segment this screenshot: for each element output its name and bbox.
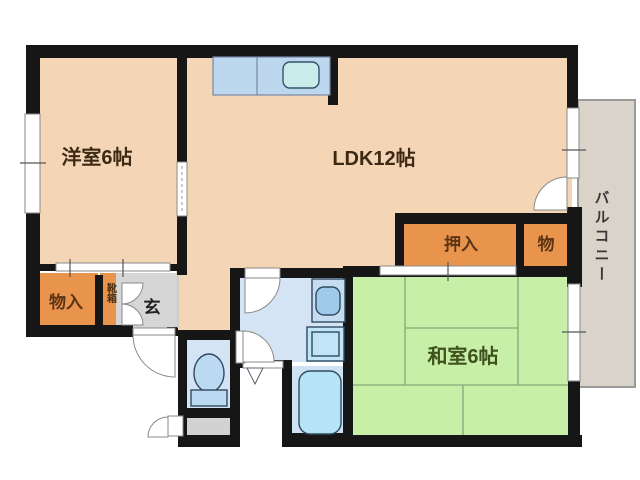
label-western-room: 洋室6帖: [61, 145, 132, 169]
closet-doors-western: [56, 263, 170, 271]
kitchen-sink-icon: [283, 62, 319, 88]
floor-plan-svg: 洋室6帖 LDK12帖 和室6帖 押入 物 物入 玄 靴箱 バルコニー: [0, 0, 640, 480]
label-balcony: バルコニー: [593, 190, 610, 285]
label-ldk: LDK12帖: [332, 147, 415, 170]
bathtub-icon: [299, 371, 341, 434]
front-door-leaf: [168, 416, 183, 436]
label-genkan: 玄: [144, 297, 161, 317]
label-japanese-room: 和室6帖: [427, 344, 498, 368]
label-oshiire: 押入: [444, 234, 478, 254]
genkan-door-leaf: [133, 328, 175, 335]
window-ldk-balcony: [567, 108, 579, 178]
bath-folding-door: [247, 368, 263, 384]
door-arc-genkan: [133, 335, 175, 377]
door-arc-front-door: [148, 417, 168, 437]
kitchen-counter-icon: [213, 57, 330, 95]
area-porch: [185, 416, 233, 436]
label-mono: 物: [538, 234, 555, 254]
vanity-sink-icon: [312, 279, 345, 322]
washing-machine-pan-icon: [307, 327, 344, 361]
toilet-icon: [191, 354, 227, 406]
doorway-washroom-top: [245, 268, 280, 278]
label-monoiri: 物入: [49, 292, 83, 312]
sliding-door-western-ldk: [177, 162, 187, 216]
label-shoebox: 靴箱: [105, 282, 117, 304]
